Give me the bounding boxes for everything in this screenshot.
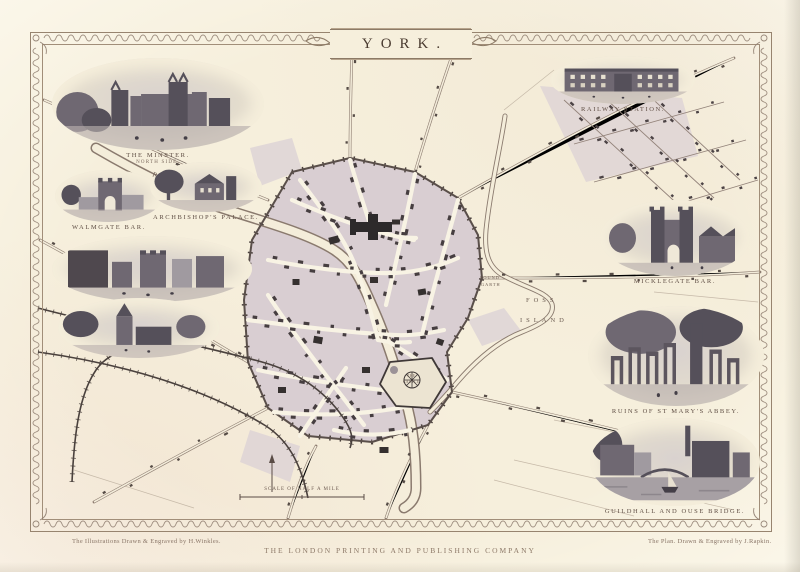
vignette-st-marys-abbey: RUINS OF ST MARY'S ABBEY. (588, 306, 764, 416)
walmgate-bar-illustration (55, 170, 163, 222)
vignette-caption: ARCHBISHOP'S PALACE. (150, 214, 262, 222)
archbishops-palace-illustration (150, 162, 262, 212)
vignette-caption: MICKLEGATE BAR. (600, 278, 750, 286)
vignette-railway-station: RAILWAY STATION. (550, 56, 696, 114)
st-marys-abbey-illustration (588, 306, 764, 406)
engraver-credit: The Plan. Drawn & Engraved by J.Rapkin. (648, 538, 771, 545)
railway-station-illustration (550, 56, 696, 104)
minster-illustration (52, 58, 264, 150)
vignette-micklegate-bar: MICKLEGATE BAR. (600, 200, 750, 286)
vignette-walmgate-bar: WALMGATE BAR. (55, 170, 163, 232)
publisher-imprint: THE LONDON PRINTING AND PUBLISHING COMPA… (0, 546, 800, 555)
vignette-caption: RUINS OF ST MARY'S ABBEY. (588, 408, 764, 416)
sheet-edge-shadow-right (784, 0, 800, 572)
map-title: YORK. (354, 36, 448, 53)
micklegate-bar-illustration (600, 200, 750, 276)
vignette-caption: RAILWAY STATION. (550, 106, 696, 114)
sheet-edge-shadow-bottom (0, 562, 800, 572)
antique-map-sheet: { "sheet": { "title": "YORK.", "imprint_… (0, 0, 800, 572)
vignette-caption: GUILDHALL AND OUSE BRIDGE. (590, 508, 760, 516)
vignette-abbey-scene (58, 298, 220, 360)
illustrator-credit: The Illustrations Drawn & Engraved by H.… (72, 538, 221, 545)
guildhall-ouse-bridge-illustration (590, 418, 760, 506)
vignette-the-minster: THE MINSTER. NORTH SIDE. (52, 58, 264, 166)
title-cartouche: YORK. (330, 29, 472, 59)
castle-illustration (52, 236, 252, 302)
abbey-scene-illustration (58, 298, 220, 358)
vignette-guildhall-ouse-bridge: GUILDHALL AND OUSE BRIDGE. (590, 418, 760, 516)
vignette-archbishops-palace: ARCHBISHOP'S PALACE. (150, 162, 262, 222)
vignette-caption: WALMGATE BAR. (55, 224, 163, 232)
vignette-caption: THE MINSTER. (52, 152, 264, 160)
